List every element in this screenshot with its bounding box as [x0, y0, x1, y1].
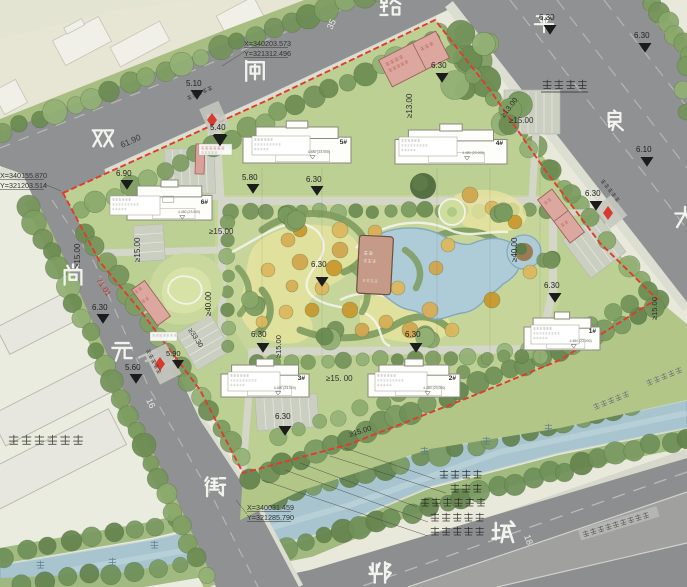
svg-text:6.30: 6.30: [405, 330, 421, 339]
svg-text:6.30: 6.30: [634, 31, 650, 40]
svg-text:5.60: 5.60: [125, 363, 141, 372]
svg-text:≥40.00: ≥40.00: [510, 237, 519, 262]
svg-text:≥40.00: ≥40.00: [204, 291, 213, 316]
svg-text:6.30: 6.30: [539, 13, 555, 22]
svg-text:X=340031.459: X=340031.459: [247, 503, 294, 512]
svg-text:Y=321312.496: Y=321312.496: [244, 49, 291, 58]
svg-text:5.80: 5.80: [242, 173, 258, 182]
svg-text:6.30: 6.30: [92, 303, 108, 312]
svg-text:1#: 1#: [589, 328, 597, 335]
svg-text:≥15.00: ≥15.00: [650, 297, 659, 320]
svg-text:≥15.00: ≥15.00: [133, 237, 142, 262]
svg-text:4.480 (23.000): 4.480 (23.000): [462, 151, 484, 155]
svg-text:≥15.00: ≥15.00: [209, 227, 234, 236]
svg-text:6.30: 6.30: [544, 281, 560, 290]
svg-text:2#: 2#: [449, 375, 457, 382]
svg-text:X=340155.870: X=340155.870: [0, 171, 47, 180]
svg-text:4.480 (23.000): 4.480 (23.000): [308, 150, 330, 154]
svg-text:5#: 5#: [340, 139, 348, 146]
svg-text:5.90: 5.90: [166, 349, 181, 358]
svg-text:6.30: 6.30: [251, 330, 267, 339]
svg-text:≥15.00: ≥15.00: [73, 243, 82, 268]
svg-text:Y=321203.514: Y=321203.514: [0, 181, 47, 190]
svg-text:5.40: 5.40: [210, 123, 226, 132]
svg-text:≥15.00: ≥15.00: [509, 116, 534, 125]
svg-text:6.30: 6.30: [585, 189, 601, 198]
svg-text:4.480 (23.000): 4.480 (23.000): [423, 386, 445, 390]
svg-text:4.480 (23.000): 4.480 (23.000): [274, 386, 296, 390]
svg-text:≥15. 00: ≥15. 00: [326, 374, 353, 383]
svg-text:4.480 (23.000): 4.480 (23.000): [178, 210, 200, 214]
svg-text:4#: 4#: [496, 140, 504, 147]
svg-text:≥15.00: ≥15.00: [274, 335, 283, 358]
svg-text:≥13.00: ≥13.00: [405, 93, 414, 118]
svg-text:6#: 6#: [201, 199, 209, 206]
svg-text:6.30: 6.30: [311, 260, 327, 269]
svg-text:6.10: 6.10: [636, 145, 652, 154]
svg-text:6.30: 6.30: [431, 61, 447, 70]
svg-text:4.480 (23.000): 4.480 (23.000): [570, 339, 592, 343]
svg-text:Y=321285.790: Y=321285.790: [247, 513, 294, 522]
svg-text:6.30: 6.30: [275, 412, 291, 421]
svg-text:5.10: 5.10: [186, 79, 202, 88]
svg-text:6.90: 6.90: [116, 169, 132, 178]
svg-text:6.30: 6.30: [306, 175, 322, 184]
svg-text:X=340203.573: X=340203.573: [244, 39, 291, 48]
svg-text:3#: 3#: [298, 375, 306, 382]
